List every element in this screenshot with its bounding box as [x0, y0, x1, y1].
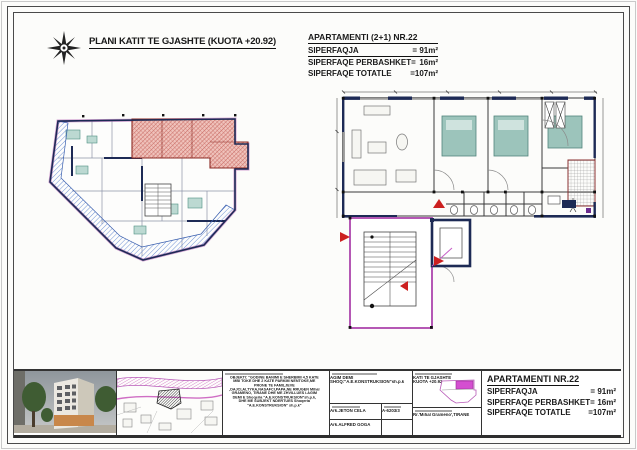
summary-row: SIPERFAQE TOTATLE =107m² — [308, 68, 438, 79]
apartment-plan — [334, 90, 606, 346]
license-cell: A-6203/3 — [381, 404, 412, 419]
architect-row: Ark.JETON CELA A-6203/3 — [330, 403, 412, 419]
architect-license: A-6203/3 — [382, 409, 404, 413]
row-label: SIPERFAQE TOTATLE — [308, 68, 392, 79]
row-value: 16m² — [597, 398, 616, 409]
license-cell — [381, 420, 412, 435]
titleblock-apartment-info: APARTAMENTI NR.22 SIPERFAQJA = 91m² SIPE… — [482, 371, 621, 435]
mini-key-plan — [438, 378, 480, 404]
tb-row: SIPERFAQE PERBASHKET= 16m² — [487, 398, 616, 409]
investor-cell: AGIM DEMI SHOQ:"A.E.KONSTRUKSION"sh.p.k — [330, 371, 412, 403]
illegible-microtext — [332, 373, 377, 375]
title-block: OBJEKTI: "GODINE BANIMI E SHERBIMI 4,5 K… — [14, 369, 621, 438]
row-value: = 91m² — [412, 45, 438, 56]
row-label: SIPERFAQJA — [487, 387, 538, 398]
site-map-image — [117, 371, 222, 433]
row-value: =107m² — [410, 68, 438, 79]
compass-icon — [45, 29, 83, 67]
sheet-title: PLANI KATIT TE GJASHTE (KUOTA +20.92) — [89, 36, 276, 49]
address-cell: Rr.'Mihal Grameno',TIRANE — [413, 407, 481, 435]
row-label: SIPERFAQE PERBASHKET= — [487, 398, 595, 409]
architect-row: Ark.ALFRED GOGA — [330, 419, 412, 435]
illegible-microtext — [225, 373, 283, 375]
architect-name: Ark.ALFRED GOGA — [330, 423, 367, 427]
row-label: SIPERFAQE PERBASHKET= — [308, 57, 416, 68]
tb-row: SIPERFAQE TOTATLE =107m² — [487, 408, 616, 419]
summary-row: SIPERFAQJA = 91m² — [308, 45, 438, 57]
row-label: SIPERFAQE TOTATLE — [487, 408, 571, 419]
sheet-key-cell: KATI TE GJASHTE KUOTA +20.92 — [413, 371, 481, 407]
sheet-name-cell: KATI TE GJASHTE KUOTA +20.92 Rr.'Mihal G… — [413, 371, 482, 435]
apartment-summary-title: APARTAMENTI (2+1) NR.22 — [308, 32, 438, 44]
investor-firm: SHOQ:"A.E.KONSTRUKSION"sh.p.k — [330, 380, 389, 384]
building-render-image — [14, 371, 116, 433]
row-value: =107m² — [588, 408, 616, 419]
tb-row: SIPERFAQJA = 91m² — [487, 387, 616, 398]
building-render-cell — [14, 371, 117, 435]
firm-cell: AGIM DEMI SHOQ:"A.E.KONSTRUKSION"sh.p.k … — [330, 371, 413, 435]
object-line: "A.E.KONSTRUKSION" sh.p.k" — [223, 404, 327, 408]
address: Rr.'Mihal Grameno',TIRANE — [413, 413, 462, 417]
architect-name-cell: Ark.JETON CELA — [330, 404, 381, 419]
summary-row: SIPERFAQE PERBASHKET= 16m² — [308, 57, 438, 68]
floor-key-plan — [42, 106, 274, 306]
row-label: SIPERFAQJA — [308, 45, 359, 56]
row-value: = 91m² — [590, 387, 616, 398]
tb-apartment-title: APARTAMENTI NR.22 — [487, 374, 579, 386]
object-description-cell: OBJEKTI: "GODINE BANIMI E SHERBIMI 4,5 K… — [223, 371, 330, 435]
architect-name-cell: Ark.ALFRED GOGA — [330, 420, 381, 435]
site-map-cell — [117, 371, 223, 435]
object-description: OBJEKTI: "GODINE BANIMI E SHERBIMI 4,5 K… — [223, 376, 327, 408]
drawing-sheet: PLANI KATIT TE GJASHTE (KUOTA +20.92) AP… — [0, 0, 637, 450]
apartment-summary: APARTAMENTI (2+1) NR.22 SIPERFAQJA = 91m… — [308, 32, 438, 79]
row-value: 16m² — [419, 57, 438, 68]
architect-name: Ark.JETON CELA — [330, 409, 367, 413]
illegible-microtext — [415, 373, 452, 375]
